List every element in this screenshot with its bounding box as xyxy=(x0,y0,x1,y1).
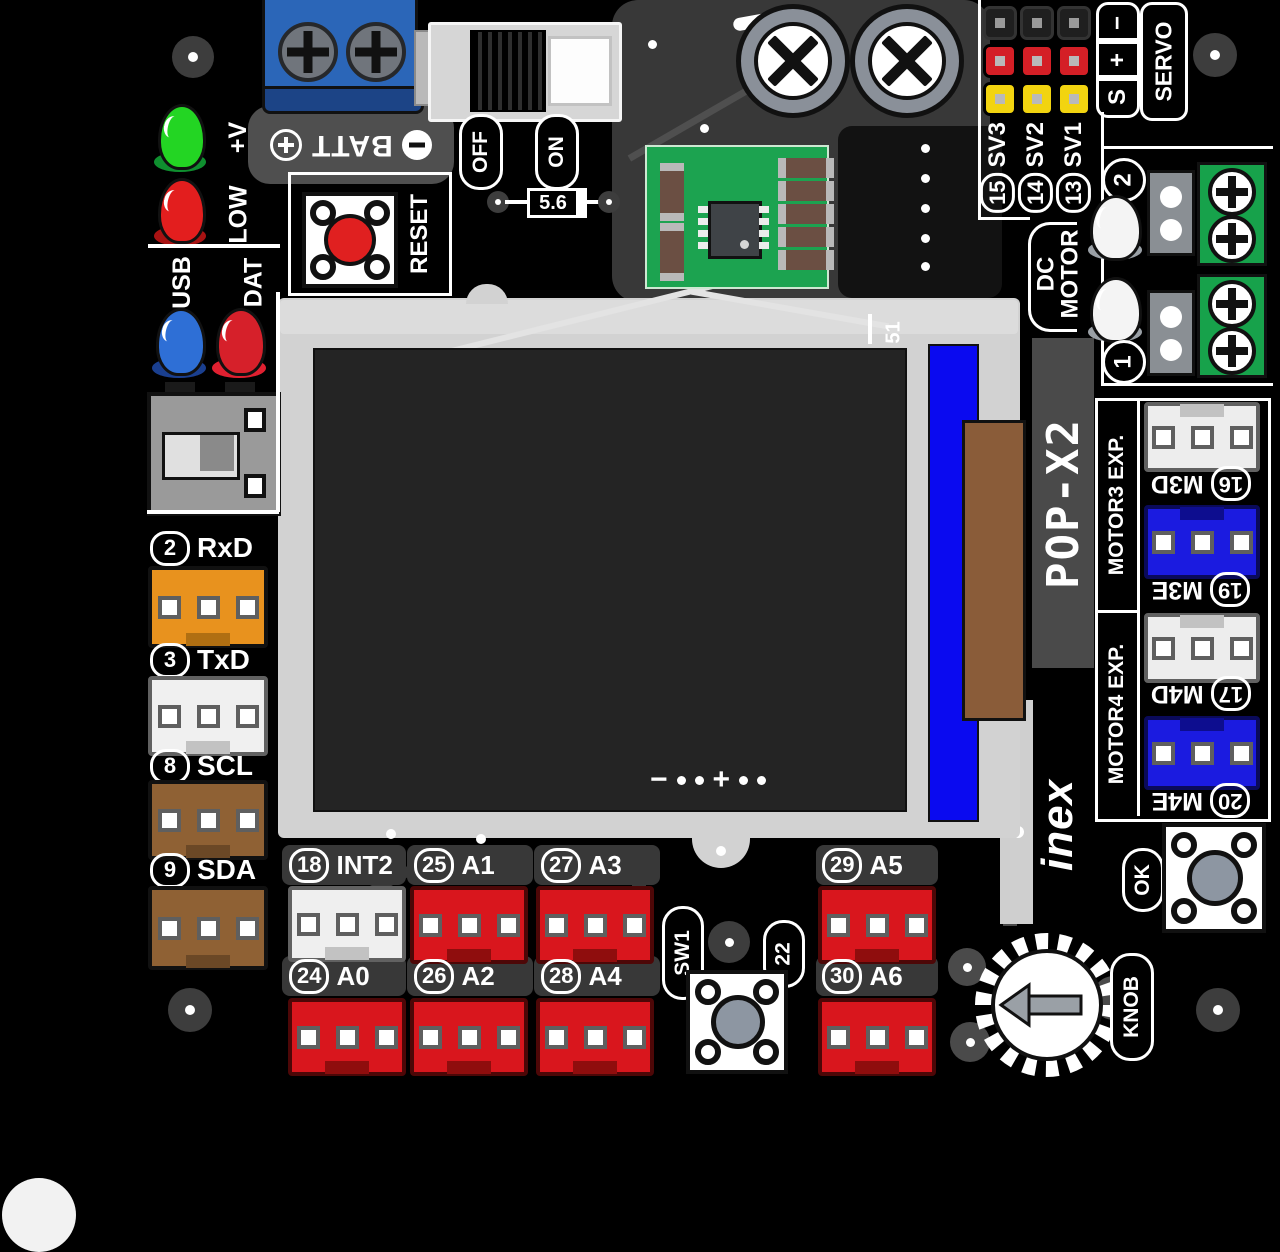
backlight-plus: + xyxy=(713,763,731,797)
m3e-label: 19 M3E xyxy=(1146,575,1256,605)
a0-port xyxy=(288,998,406,1076)
pad-hole xyxy=(708,921,750,963)
txd-port xyxy=(148,676,268,756)
channel-name: SV1 xyxy=(1059,122,1087,167)
channel-name: SV2 xyxy=(1021,122,1049,167)
via-dot xyxy=(921,204,930,213)
motor1-socket xyxy=(1147,290,1195,376)
via-dot xyxy=(921,234,930,243)
terminal-screw[interactable] xyxy=(1208,215,1256,263)
a4-label: 28A4 xyxy=(541,960,622,992)
fuse-symbol: 5.6 xyxy=(527,188,579,218)
servo-pin-sig xyxy=(1057,82,1091,116)
sda-port xyxy=(148,886,268,970)
servo-pin-gnd xyxy=(983,6,1017,40)
via-dot xyxy=(716,846,726,856)
a2-port xyxy=(410,998,528,1076)
ic-pin xyxy=(759,206,769,213)
terminal-screw[interactable] xyxy=(1208,168,1256,216)
a4-port xyxy=(536,998,654,1076)
port-name: SDA xyxy=(197,854,256,886)
fuse-band xyxy=(578,188,587,218)
m4e-label: 20 M4E xyxy=(1146,786,1256,816)
servo-pin-vcc xyxy=(1057,44,1091,78)
port-name: M4E xyxy=(1152,787,1203,816)
pin-number: 8 xyxy=(150,749,190,784)
battery-screw[interactable] xyxy=(278,22,338,82)
button-pin xyxy=(1171,898,1197,924)
low-led-label: LOW xyxy=(222,176,256,252)
terminal-screw[interactable] xyxy=(1208,327,1256,375)
servo-title: SERVO xyxy=(1140,2,1188,121)
button-pin xyxy=(753,979,779,1005)
port-name: SCL xyxy=(197,750,253,782)
low-led xyxy=(158,178,206,244)
module-resistor xyxy=(778,204,834,224)
pin-number: 15 xyxy=(980,172,1015,212)
module-capacitor xyxy=(660,163,684,221)
pin-number: 13 xyxy=(1056,172,1091,212)
button-pin xyxy=(1171,832,1197,858)
port-name: TxD xyxy=(197,644,250,676)
fuse-pad xyxy=(598,191,620,213)
silk-divider xyxy=(147,510,279,514)
m3d-port xyxy=(1144,402,1260,472)
pad-dot xyxy=(757,776,766,785)
usb-led-label: USB xyxy=(166,252,198,312)
pin-number: 2 xyxy=(150,531,190,566)
usb-socket-tongue xyxy=(200,435,234,471)
usb-contact xyxy=(244,474,266,498)
button-pin xyxy=(695,979,721,1005)
dcmotor-bracket xyxy=(1101,146,1273,149)
button-pin xyxy=(695,1039,721,1065)
silk-tick xyxy=(868,314,872,344)
ok-cap[interactable] xyxy=(1187,850,1243,906)
corner-pad xyxy=(2,1178,76,1252)
rxd-label: 2 RxD xyxy=(150,530,253,566)
power-switch-recess xyxy=(548,36,612,106)
a2-label: 26A2 xyxy=(414,960,495,992)
brand-logo: inex xyxy=(1026,766,1090,884)
m4d-label: 17 M4D xyxy=(1146,679,1256,709)
pcb-board: 51 − + BATT OFF ON 5.6 xyxy=(0,0,1280,1252)
scl-label: 8 SCL xyxy=(150,748,253,784)
ic-pin xyxy=(698,230,708,237)
m4e-port xyxy=(1144,716,1260,790)
channel-name: SV3 xyxy=(983,122,1011,167)
servo-pin-vcc xyxy=(983,44,1017,78)
servo-pin-sig xyxy=(1020,82,1054,116)
port-name: M3E xyxy=(1152,576,1203,605)
vplus-led-label: +V xyxy=(222,104,256,170)
scl-port xyxy=(148,780,268,860)
ic-pin xyxy=(698,218,708,225)
mounting-hole xyxy=(1193,33,1237,77)
a1-port xyxy=(410,886,528,964)
a0-label: 24A0 xyxy=(289,960,370,992)
terminal-screw[interactable] xyxy=(1208,280,1256,328)
dat-led xyxy=(216,308,266,376)
silk-divider xyxy=(148,244,280,248)
m4d-port xyxy=(1144,613,1260,683)
battery-screw[interactable] xyxy=(346,22,406,82)
pad-dot xyxy=(739,776,748,785)
via-dot xyxy=(921,262,930,271)
batt-minus-icon xyxy=(402,130,432,160)
button-pin xyxy=(1231,832,1257,858)
usb-led xyxy=(156,308,206,376)
servo-ch-sv2: 14 SV2 xyxy=(1017,114,1053,220)
txd-label: 3 TxD xyxy=(150,642,250,678)
a3-label: 27A3 xyxy=(541,849,622,881)
servo-pin-vcc xyxy=(1020,44,1054,78)
pin-number: 9 xyxy=(150,853,190,888)
usb-contact xyxy=(244,408,266,432)
sw1-cap[interactable] xyxy=(711,995,765,1049)
module-resistor xyxy=(778,250,834,270)
knob-dial[interactable] xyxy=(965,923,1129,1087)
rxd-port xyxy=(148,566,268,648)
motor2-led xyxy=(1090,195,1142,261)
mounting-hole xyxy=(1196,988,1240,1032)
ic-pin xyxy=(759,230,769,237)
module-resistor xyxy=(778,181,834,201)
pin-number: 14 xyxy=(1018,172,1053,212)
port-name: M4D xyxy=(1151,680,1204,709)
dat-led-label: DAT xyxy=(238,252,270,312)
dcmotor-title: DC MOTOR xyxy=(1030,222,1086,326)
speaker-screw xyxy=(850,4,964,118)
pad-dot xyxy=(695,776,704,785)
mounting-hole xyxy=(168,988,212,1032)
fuse-value: 5.6 xyxy=(539,192,567,215)
int2-port xyxy=(288,886,406,962)
button-pin xyxy=(1231,898,1257,924)
motor2-socket xyxy=(1147,170,1195,256)
reset-cap[interactable] xyxy=(324,214,376,266)
reset-button[interactable] xyxy=(302,192,398,288)
via-dot xyxy=(476,834,486,844)
batt-label: BATT xyxy=(311,128,393,162)
via-dot xyxy=(386,829,396,839)
fuse-lead xyxy=(505,200,529,204)
module-ic xyxy=(708,201,762,259)
lcd-connector xyxy=(962,420,1026,721)
port-name: RxD xyxy=(197,532,253,564)
servo-pin-gnd xyxy=(1057,6,1091,40)
screen-marker-label: 51 xyxy=(880,310,908,354)
vplus-led xyxy=(158,104,206,170)
a3-port xyxy=(536,886,654,964)
int2-label: 18INT2 xyxy=(289,849,393,881)
via-dot xyxy=(921,174,930,183)
knob-label: KNOB xyxy=(1110,953,1154,1061)
module-resistor xyxy=(778,227,834,247)
pin-number: 19 xyxy=(1210,573,1250,608)
dcmotor-line1: DC xyxy=(1034,257,1058,292)
silk-divider xyxy=(276,292,280,512)
a6-port xyxy=(818,998,936,1076)
dcmotor-line2: MOTOR xyxy=(1058,230,1082,319)
lcd-screen xyxy=(313,348,907,812)
backlight-marks: − + xyxy=(650,758,820,802)
a6-label: 30A6 xyxy=(822,960,903,992)
lcd-top-bump xyxy=(466,284,508,304)
batt-plus-icon xyxy=(270,129,302,161)
ic-pin xyxy=(759,242,769,249)
mounting-hole xyxy=(172,36,214,78)
reset-label: RESET xyxy=(398,180,442,288)
ic-pin xyxy=(698,242,708,249)
servo-pin-sig xyxy=(983,82,1017,116)
power-switch-knob[interactable] xyxy=(470,30,546,112)
module-capacitor xyxy=(660,223,684,281)
pin-number: 3 xyxy=(150,643,190,678)
via-dot xyxy=(648,40,657,49)
dcmotor-ch1-label: 1 xyxy=(1102,340,1146,384)
ok-button[interactable] xyxy=(1162,823,1266,933)
pin-number: 17 xyxy=(1211,677,1251,712)
servo-ch-sv1: 13 SV1 xyxy=(1055,114,1091,220)
sw1-button[interactable] xyxy=(686,970,788,1074)
ic-pin xyxy=(759,218,769,225)
motor3-title: MOTOR3 EXP. xyxy=(1096,400,1138,610)
ic-pin xyxy=(698,206,708,213)
m3e-port xyxy=(1144,505,1260,579)
a5-port xyxy=(818,886,936,964)
servo-ch-sv3: 15 SV3 xyxy=(979,114,1015,220)
pad-dot xyxy=(677,776,686,785)
button-pin xyxy=(753,1039,779,1065)
pin-number: 20 xyxy=(1210,784,1250,819)
sda-label: 9 SDA xyxy=(150,852,256,888)
motor4-title: MOTOR4 EXP. xyxy=(1096,613,1138,815)
via-dot xyxy=(700,124,709,133)
port-name: M3D xyxy=(1151,470,1204,499)
on-label: ON xyxy=(535,114,579,190)
board-name: POP-X2 xyxy=(1032,350,1094,656)
module-resistor xyxy=(778,158,834,178)
ok-label: OK xyxy=(1122,848,1164,912)
a1-label: 25A1 xyxy=(414,849,495,881)
a5-label: 29A5 xyxy=(822,849,903,881)
servo-pin-gnd xyxy=(1020,6,1054,40)
dcmotor-bracket xyxy=(1101,112,1104,150)
via-dot xyxy=(921,144,930,153)
m3d-label: 16 M3D xyxy=(1146,468,1256,500)
backlight-minus: − xyxy=(650,763,668,797)
ic-pin1-dot xyxy=(740,240,749,249)
off-label: OFF xyxy=(459,114,503,190)
motor1-led xyxy=(1090,277,1142,343)
pin-number: 16 xyxy=(1211,467,1251,502)
speaker-screw xyxy=(736,4,850,118)
